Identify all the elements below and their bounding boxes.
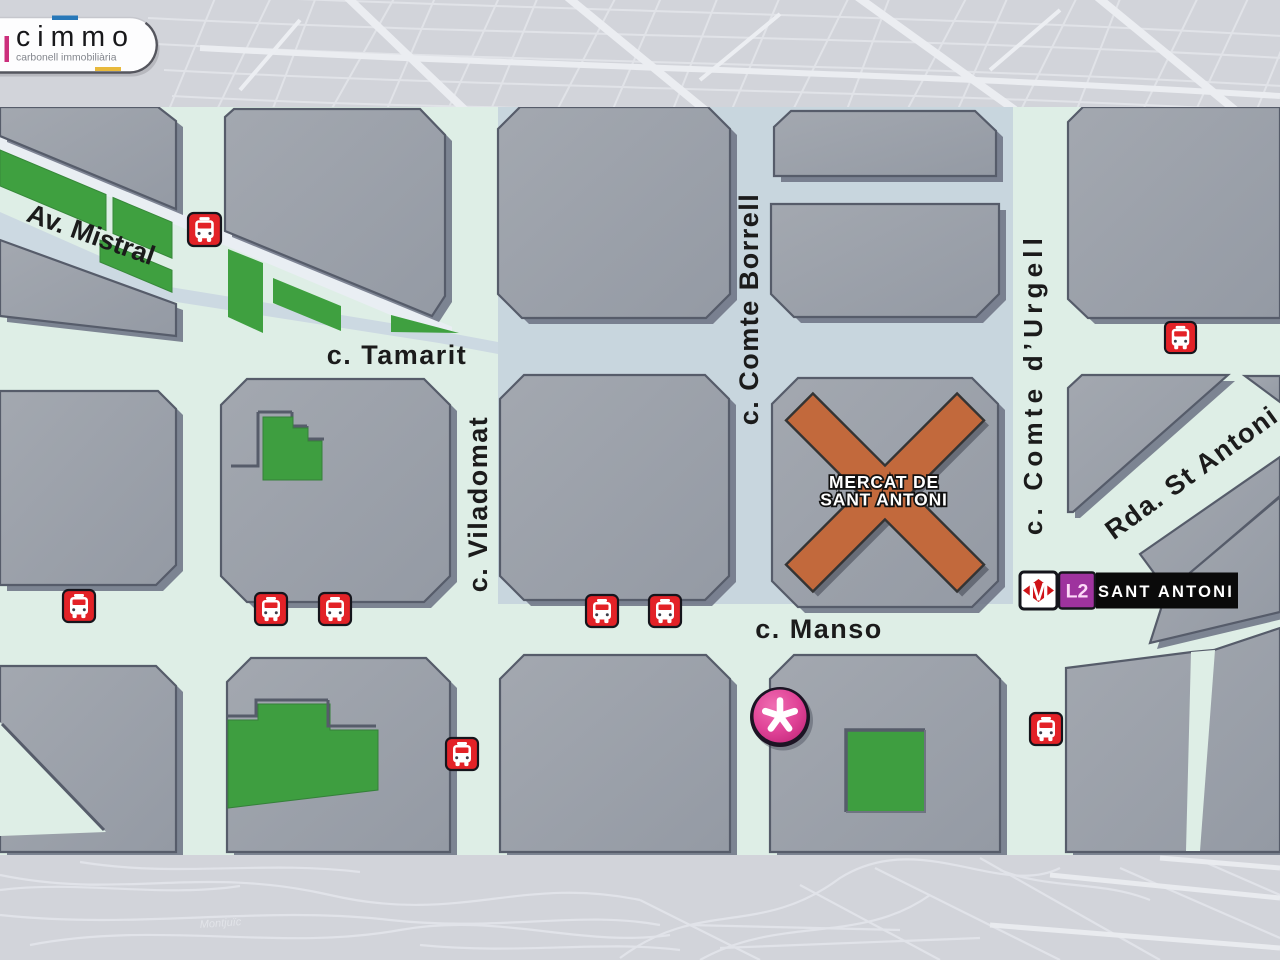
svg-text:c. Viladomat: c. Viladomat (463, 416, 493, 593)
svg-text:SANT ANTONI: SANT ANTONI (1098, 583, 1234, 601)
svg-text:c. Comte d’Urgell: c. Comte d’Urgell (1018, 233, 1048, 535)
svg-text:c. Comte Borrell: c. Comte Borrell (734, 193, 764, 426)
svg-text:L2: L2 (1066, 581, 1089, 603)
svg-text:c. Manso: c. Manso (755, 614, 883, 644)
svg-text:c. Tamarit: c. Tamarit (327, 340, 468, 370)
svg-text:M: M (1028, 579, 1049, 607)
svg-text:SANT ANTONI: SANT ANTONI (820, 490, 947, 510)
svg-text:carbonell immobiliària: carbonell immobiliària (16, 53, 117, 64)
svg-text:cimmo: cimmo (16, 21, 135, 53)
